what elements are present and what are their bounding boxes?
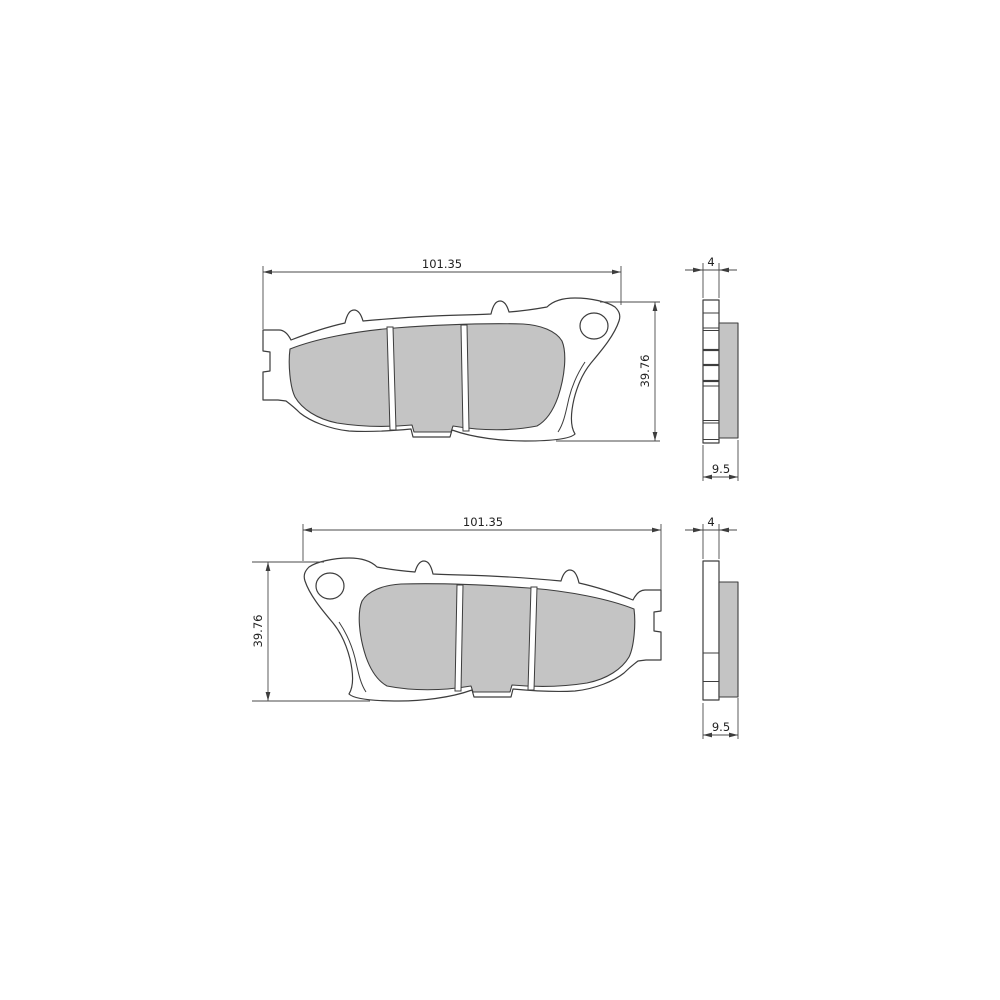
dim-width-top-label: 101.35 [422,257,462,271]
side-friction-material [719,582,738,697]
top-pad-side-view [703,300,738,443]
bottom-pad-front-view [304,558,661,701]
side-friction-material [719,323,738,438]
dim-plate-thickness-bottom: 4 [685,515,737,559]
dim-height-top-label: 39.76 [638,355,652,388]
dim-plate-thickness-top-label: 4 [707,255,714,269]
drawing-canvas: 101.35 39.76 4 [0,0,1000,1000]
dim-total-thickness-bottom-label: 9.5 [712,720,730,734]
dim-plate-thickness-bottom-label: 4 [707,515,714,529]
dim-width-bottom-label: 101.35 [463,515,503,529]
dim-height-bottom-label: 39.76 [251,615,265,648]
top-pad-front-view [263,298,620,441]
side-backing-plate [703,300,719,443]
side-backing-plate [703,561,719,700]
brake-pad-technical-drawing: 101.35 39.76 4 [0,0,1000,1000]
dim-plate-thickness-top: 4 [685,255,737,298]
dim-total-thickness-top: 9.5 [703,440,738,481]
dim-total-thickness-top-label: 9.5 [712,462,730,476]
bottom-pad-side-view [703,561,738,700]
dim-total-thickness-bottom: 9.5 [703,698,738,739]
